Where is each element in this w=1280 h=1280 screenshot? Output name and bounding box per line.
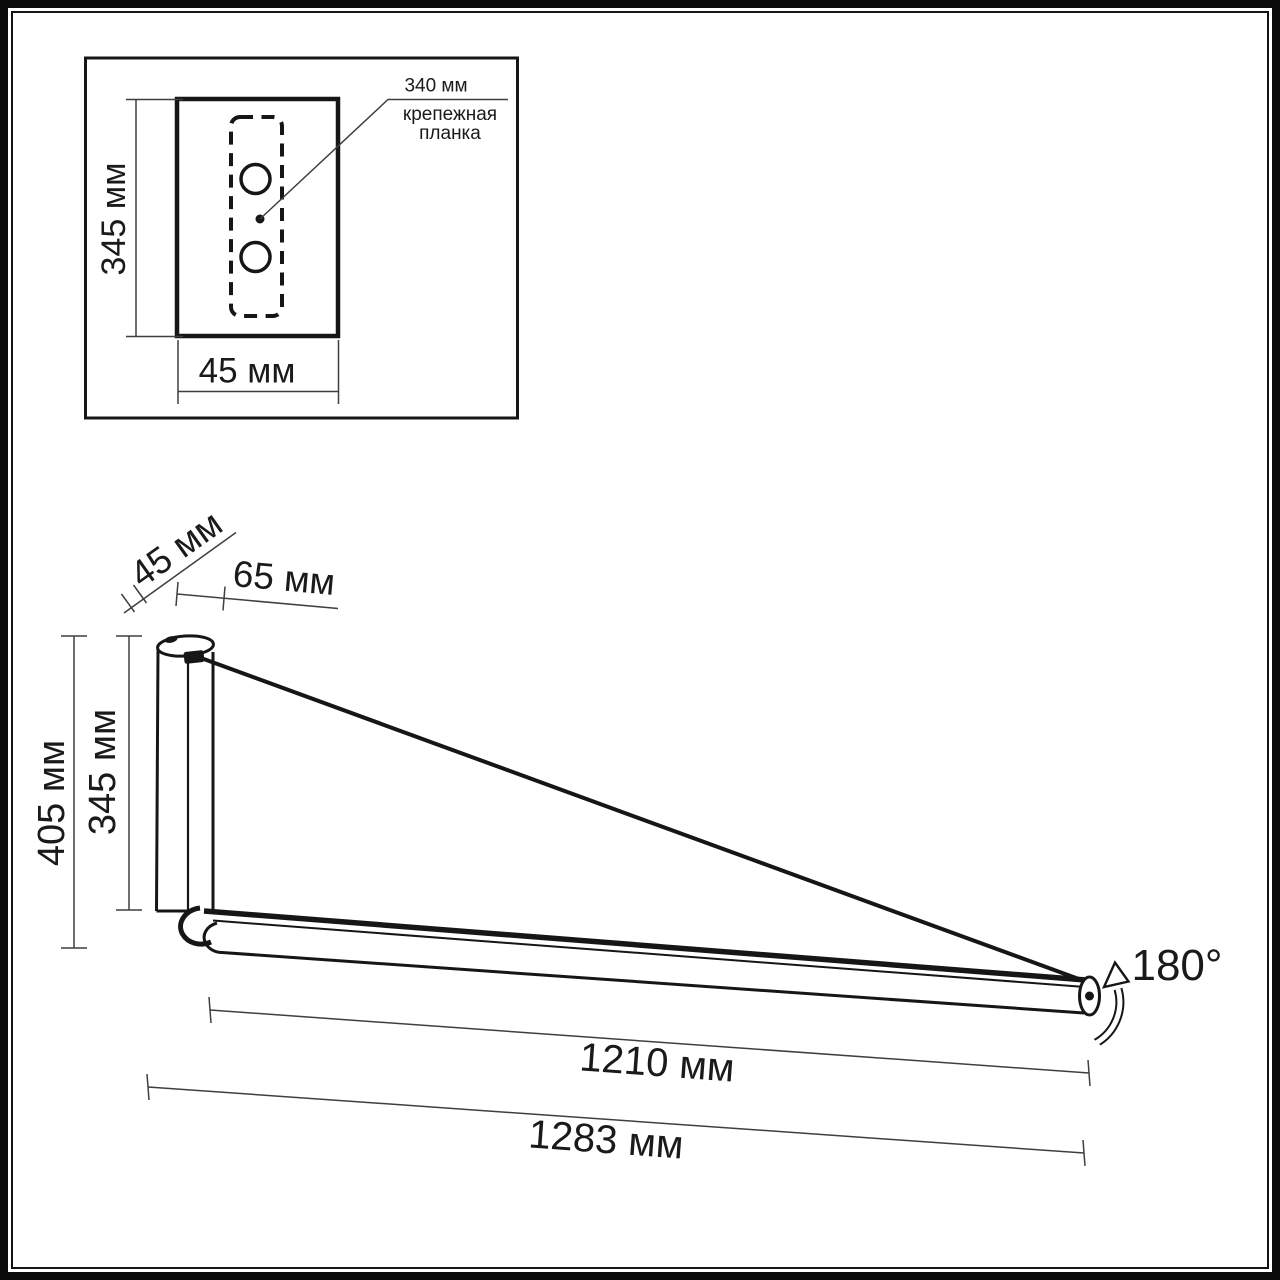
inset-height-dimension	[126, 100, 183, 337]
overall-height-dim-label: 405 мм	[33, 740, 71, 866]
drawing-canvas	[0, 0, 1280, 1280]
technical-drawing-page: 345 мм 45 мм 340 мм крепежная планка 45 …	[0, 0, 1280, 1280]
inset-width-dim-label: 45 мм	[199, 354, 296, 389]
fixture-side-view	[157, 634, 1100, 1015]
plate-caption-line2: планка	[403, 124, 497, 143]
mounting-hole-bottom	[241, 243, 270, 272]
mounting-hole-top	[241, 165, 270, 194]
bracket-height-dim-label: 345 мм	[84, 709, 122, 835]
arm-top-edge	[204, 911, 1086, 980]
rotation-arrow-head	[1104, 963, 1129, 988]
arm-top-inner-line	[213, 921, 1085, 988]
arm-end-center-dot	[1085, 992, 1094, 1001]
bracket-left-edge	[157, 649, 159, 911]
plate-caption: крепежная планка	[403, 105, 497, 143]
rotation-angle-label: 180°	[1131, 944, 1222, 988]
overall-length-dim-label: 1283 мм	[527, 1114, 685, 1165]
arm-length-dim-label: 1210 мм	[578, 1037, 736, 1088]
plate-dim-label: 340 мм	[404, 77, 467, 96]
suspension-cable	[201, 658, 1087, 982]
inset-height-dim-label: 345 мм	[97, 163, 131, 276]
plate-caption-line1: крепежная	[403, 105, 497, 124]
arm-offset-dim-label: 65 мм	[231, 555, 336, 601]
dimension-lines	[61, 533, 1090, 1167]
